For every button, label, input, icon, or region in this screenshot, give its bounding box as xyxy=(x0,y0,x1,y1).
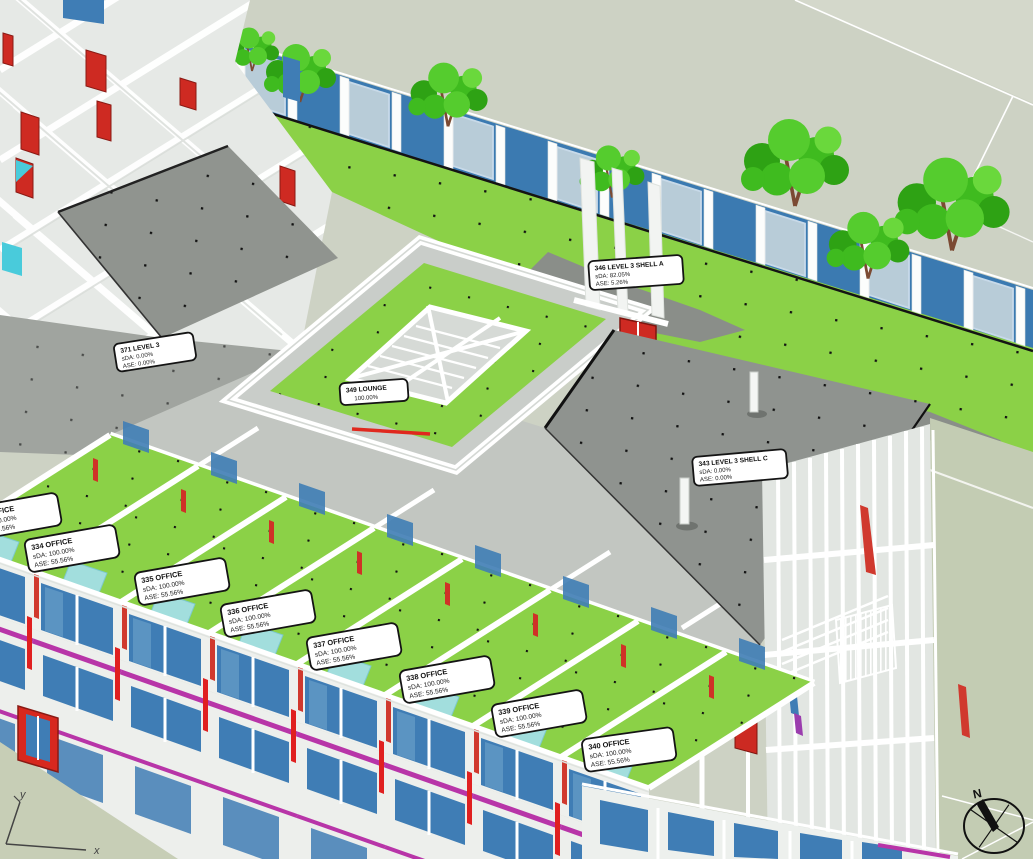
3d-model-canvas[interactable]: 346 LEVEL 3 SHELL A sDA: 82.05% ASE: 5.2… xyxy=(0,0,1033,859)
model-viewport[interactable]: 346 LEVEL 3 SHELL A sDA: 82.05% ASE: 5.2… xyxy=(0,0,1033,859)
axis-x-label: x xyxy=(93,845,100,857)
tag-shell-a[interactable]: 346 LEVEL 3 SHELL A sDA: 82.05% ASE: 5.2… xyxy=(588,255,684,290)
tag-lounge[interactable]: 349 LOUNGE 100.00% xyxy=(339,379,408,406)
window-glass xyxy=(283,56,300,102)
railing-hatch xyxy=(836,605,896,683)
entrance-red-door xyxy=(18,706,58,772)
cyan-door xyxy=(2,242,22,276)
